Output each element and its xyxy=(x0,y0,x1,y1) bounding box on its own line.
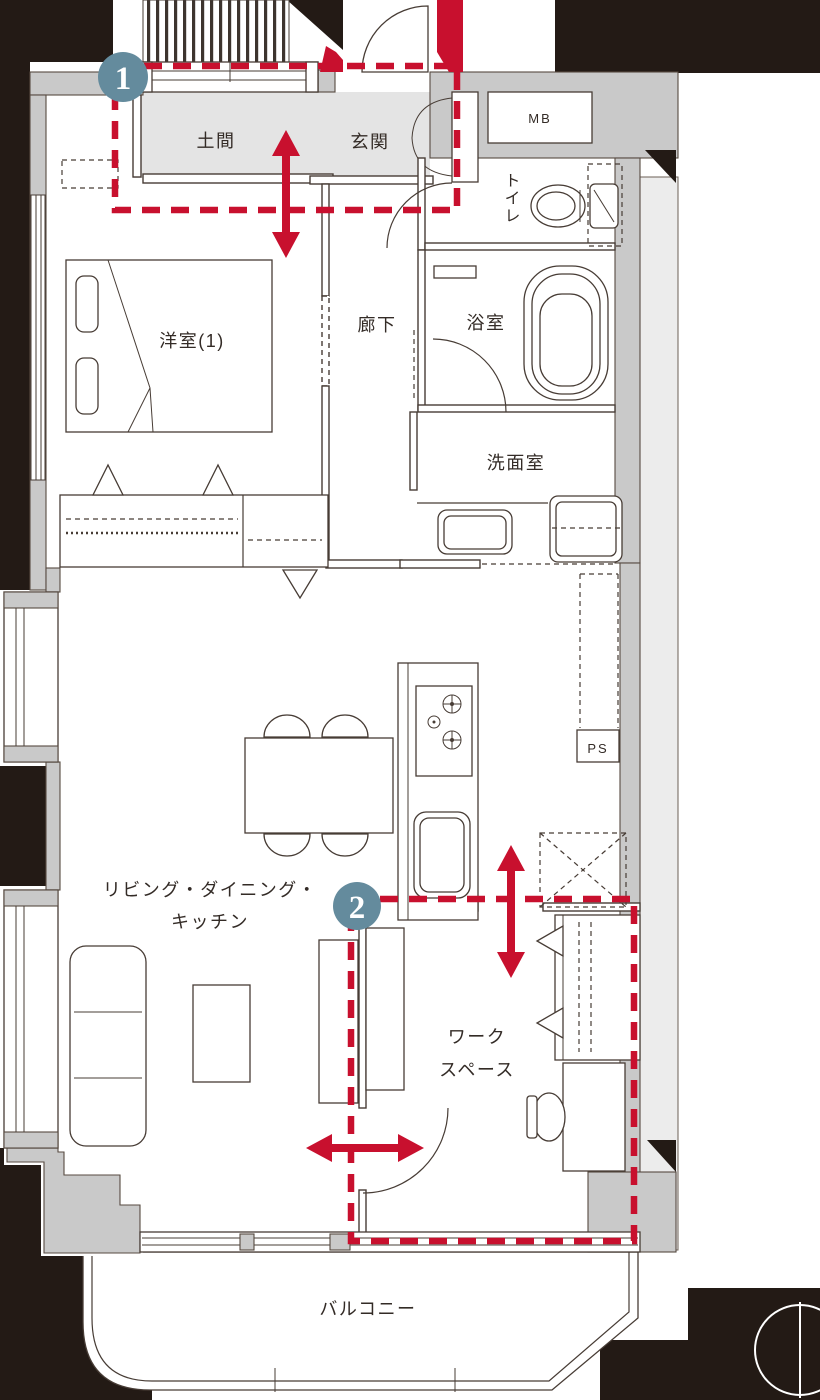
workspace-shelf xyxy=(366,928,404,1090)
label-balcony: バルコニー xyxy=(319,1299,416,1319)
bedroom-window xyxy=(31,195,45,480)
label-workspace-line1: ワーク xyxy=(448,1027,507,1047)
washing-machine-pan xyxy=(550,496,622,562)
marker-2: 2 xyxy=(333,882,381,930)
tv-board xyxy=(319,940,358,1103)
label-mb: MB xyxy=(528,111,552,126)
label-washroom: 洗面室 xyxy=(487,453,546,473)
marker-2-number: 2 xyxy=(349,890,366,926)
label-genkan: 玄関 xyxy=(351,132,390,152)
bay-window-lower xyxy=(4,890,58,1148)
bay-window-upper xyxy=(4,592,58,762)
label-bath: 浴室 xyxy=(467,313,506,333)
label-ldk-line1: リビング・ダイニング・ xyxy=(103,880,318,900)
east-exterior-strip xyxy=(640,177,678,1250)
floorplan-canvas: 土間 玄関 MB トイレ 浴室 洗面室 廊下 洋室(1) リビング・ダイニング・… xyxy=(0,0,820,1400)
label-toilet: トイレ xyxy=(502,172,520,225)
label-doma: 土間 xyxy=(197,131,236,151)
label-workspace-line2: スペース xyxy=(439,1060,515,1080)
marker-1-number: 1 xyxy=(115,61,132,97)
coffee-table xyxy=(193,985,250,1082)
entrance-louver-band xyxy=(140,0,318,92)
balcony-area xyxy=(83,1252,638,1392)
label-bedroom: 洋室(1) xyxy=(159,331,225,351)
label-corridor: 廊下 xyxy=(358,315,397,335)
marker-1: 1 xyxy=(98,52,148,102)
label-ldk-line2: キッチン xyxy=(171,912,249,932)
entrance-door-swing xyxy=(362,6,428,72)
floorplan-page: 土間 玄関 MB トイレ 浴室 洗面室 廊下 洋室(1) リビング・ダイニング・… xyxy=(0,0,820,1400)
label-ps: PS xyxy=(587,741,608,756)
kitchen-counter xyxy=(398,663,478,920)
sofa xyxy=(70,946,146,1146)
kitchen-sink xyxy=(414,812,470,898)
south-sliding-windows xyxy=(140,1232,640,1252)
